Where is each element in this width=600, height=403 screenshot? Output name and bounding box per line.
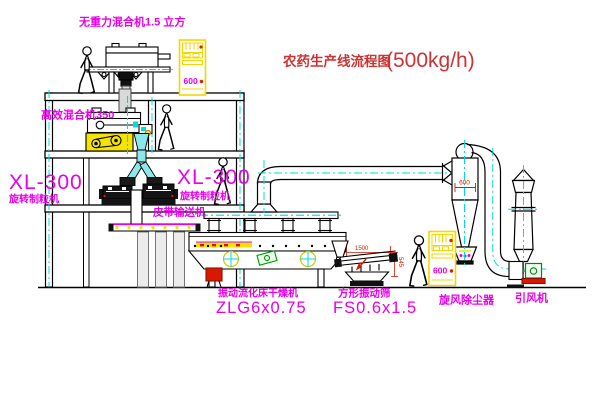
- zero-gravity-mixer: [84, 44, 173, 94]
- screen-length-dim: 1500: [355, 246, 369, 252]
- cabinet-top-dim: 600: [184, 76, 198, 86]
- granulator-discharge-column: [131, 190, 142, 226]
- exhaust-duct: [251, 160, 457, 213]
- label-dryer-model: ZLG6x0.75: [216, 299, 307, 317]
- label-granulator-right-name: 旋转制粒机: [179, 190, 230, 203]
- screen-height-dim: 545: [397, 257, 403, 268]
- label-dryer-name: 振动流化床干燥机: [218, 287, 298, 300]
- label-screen-model: FS0.6x1.5: [333, 299, 417, 317]
- indicator-dot: [450, 269, 453, 272]
- cabinet-bottom-dim: 600: [433, 266, 447, 276]
- label-granulator-right-model: XL-300: [177, 166, 251, 189]
- label-fan: 引风机: [515, 291, 548, 305]
- screen-base: [350, 281, 384, 286]
- label-belt-conveyor: 皮带输送机: [152, 206, 206, 219]
- diagram-canvas: 600: [0, 0, 600, 403]
- granulator-right: [142, 184, 179, 205]
- cyclone-dim-text: 600: [459, 180, 470, 187]
- vibration-motor-red: [206, 268, 222, 281]
- label-granulator-left-name: 旋转制粒机: [8, 193, 59, 206]
- label-high-efficiency-mixer: 高效混合机350: [41, 108, 114, 122]
- person-figure: [158, 105, 173, 150]
- control-cabinet-top: 600: [180, 40, 206, 95]
- indicator-dot: [199, 45, 202, 48]
- drawing-title: 农药生产线流程图: [282, 53, 391, 69]
- indicator-dot: [449, 239, 452, 242]
- drawing-capacity: (500kg/h): [386, 49, 475, 72]
- label-granulator-left-model: XL-300: [9, 171, 83, 194]
- support-columns: [138, 232, 185, 287]
- fluid-bed-dryer: [189, 212, 346, 287]
- dryer-air-stubs: [207, 219, 332, 233]
- process-flow-drawing: 600: [0, 0, 600, 403]
- induced-draft-fan: [507, 262, 545, 288]
- granulator-left: [99, 186, 134, 205]
- belt-conveyor: [109, 224, 201, 232]
- indicator-dot: [200, 80, 203, 83]
- label-zero-gravity-mixer: 无重力混合机1.5 立方: [78, 15, 185, 29]
- person-figure: [410, 236, 427, 286]
- label-cyclone: 旋风除尘器: [438, 293, 495, 307]
- label-screen-name: 方形振动筛: [338, 287, 391, 300]
- control-cabinet-bottom: 600: [429, 232, 456, 286]
